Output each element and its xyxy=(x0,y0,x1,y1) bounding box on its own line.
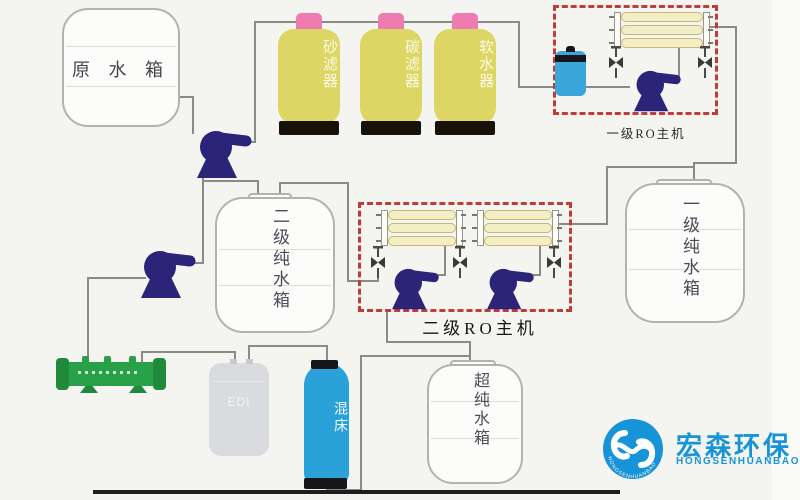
transfer-pump xyxy=(134,250,204,300)
pipe-segment xyxy=(386,341,470,343)
pipe-segment xyxy=(360,355,470,357)
vessel-base xyxy=(361,121,421,135)
uv-sterilizer-markings xyxy=(78,371,140,374)
vessel-base xyxy=(279,121,339,135)
membrane-port xyxy=(708,16,713,18)
pipe-segment xyxy=(347,182,349,282)
mixed-bed-column: 混床 xyxy=(304,363,349,487)
mixed-bed-label: 混床 xyxy=(304,401,349,435)
ro-membrane-tube xyxy=(484,236,552,246)
ro1-high-pressure-pump xyxy=(628,70,688,113)
company-name-en: HONGSENHUANBAO xyxy=(676,456,800,467)
pipe-segment xyxy=(254,21,256,143)
valve xyxy=(546,246,562,278)
pipe-segment xyxy=(141,351,236,353)
membrane-port xyxy=(557,214,562,216)
uv-end-cap xyxy=(153,358,166,390)
pipe-segment xyxy=(606,166,608,225)
valve xyxy=(697,46,713,78)
membrane-port xyxy=(708,42,713,44)
ro-membrane-bank-2b xyxy=(477,210,559,246)
stage2-pure-water-tank-label: 二级纯水箱 xyxy=(267,207,292,312)
ultra-pure-water-tank: 超纯水箱 xyxy=(427,364,523,484)
membrane-port xyxy=(708,29,713,31)
membrane-port xyxy=(472,214,477,216)
raw-water-pump xyxy=(190,130,260,180)
membrane-port xyxy=(472,240,477,242)
uv-end-cap xyxy=(56,358,69,390)
valve xyxy=(608,46,624,78)
sand-filter-vessel: 砂滤器 xyxy=(278,13,340,136)
cartridge-band xyxy=(555,55,586,62)
membrane-port xyxy=(461,214,466,216)
carbon-filter-label: 碳滤器 xyxy=(360,39,422,90)
drain-line xyxy=(93,490,620,494)
uv-sterilizer xyxy=(62,362,160,386)
pipe-segment xyxy=(518,86,558,88)
ro2-pump-b xyxy=(481,268,541,311)
softener-label: 软水器 xyxy=(434,39,496,90)
edi-module: EDI xyxy=(209,363,269,456)
pipe-segment xyxy=(735,26,737,164)
membrane-end-plate xyxy=(477,210,484,246)
pipe-segment xyxy=(694,162,737,164)
softener-vessel: 软水器 xyxy=(434,13,496,136)
raw-water-tank: 原 水 箱 xyxy=(62,8,180,127)
pipe-segment xyxy=(607,166,694,168)
edi-nozzle xyxy=(230,359,237,364)
membrane-port xyxy=(376,214,381,216)
edi-line xyxy=(213,381,265,382)
edi-label: EDI xyxy=(209,395,269,409)
pipe-segment xyxy=(248,345,328,347)
ro-membrane-tube xyxy=(388,223,456,233)
ro-stage1-label: 一级RO主机 xyxy=(598,123,694,142)
pipe-segment xyxy=(386,312,388,343)
page-right-margin xyxy=(772,0,800,500)
ro-membrane-tube xyxy=(484,223,552,233)
ro-membrane-tube xyxy=(621,12,703,22)
carbon-filter-vessel: 碳滤器 xyxy=(360,13,422,136)
stage2-pure-water-tank: 二级纯水箱 xyxy=(215,197,335,333)
membrane-port xyxy=(376,240,381,242)
water-treatment-diagram: 原 水 箱 砂滤器 碳滤器 软水器 一级RO主机 二级RO主机 一级纯水箱 xyxy=(0,0,800,500)
ro-membrane-tube xyxy=(388,210,456,220)
company-logo-icon: HONGSENHUANBAO xyxy=(598,415,668,485)
tank-level-line xyxy=(66,46,176,47)
edi-nozzle xyxy=(246,359,253,364)
membrane-port xyxy=(461,240,466,242)
membrane-port xyxy=(557,240,562,242)
ro-membrane-tube xyxy=(621,25,703,35)
ro-membrane-bank-1 xyxy=(614,12,710,48)
membrane-end-plate xyxy=(614,12,621,48)
ro-stage2-label: 二级RO主机 xyxy=(415,314,545,339)
valve xyxy=(370,246,386,278)
membrane-end-plate xyxy=(381,210,388,246)
vessel-base xyxy=(435,121,495,135)
cartridge-filter xyxy=(555,51,586,96)
mixed-bed-cap xyxy=(311,360,338,369)
pipe-segment xyxy=(202,180,259,182)
ro-membrane-bank-2a xyxy=(381,210,463,246)
ro-membrane-tube xyxy=(621,38,703,48)
pipe-segment xyxy=(360,355,362,491)
membrane-port xyxy=(461,227,466,229)
pipe-segment xyxy=(518,21,520,88)
membrane-port xyxy=(609,42,614,44)
stage1-pure-water-tank: 一级纯水箱 xyxy=(625,183,745,323)
valve xyxy=(452,246,468,278)
tank-level-line xyxy=(66,86,176,87)
ro-membrane-tube xyxy=(484,210,552,220)
pipe-segment xyxy=(279,182,349,184)
pipe-segment xyxy=(87,277,89,364)
ro2-pump-a xyxy=(386,268,446,311)
ro-membrane-tube xyxy=(388,236,456,246)
membrane-port xyxy=(609,29,614,31)
ultra-pure-water-tank-label: 超纯水箱 xyxy=(467,372,491,448)
membrane-port xyxy=(557,227,562,229)
pipe-segment xyxy=(192,96,194,134)
cartridge-knob xyxy=(566,46,575,52)
sand-filter-label: 砂滤器 xyxy=(278,39,340,90)
membrane-port xyxy=(609,16,614,18)
membrane-port xyxy=(376,227,381,229)
raw-water-tank-label: 原 水 箱 xyxy=(64,56,178,82)
membrane-port xyxy=(472,227,477,229)
stage1-pure-water-tank-label: 一级纯水箱 xyxy=(677,195,702,300)
mixed-bed-base xyxy=(304,478,347,489)
